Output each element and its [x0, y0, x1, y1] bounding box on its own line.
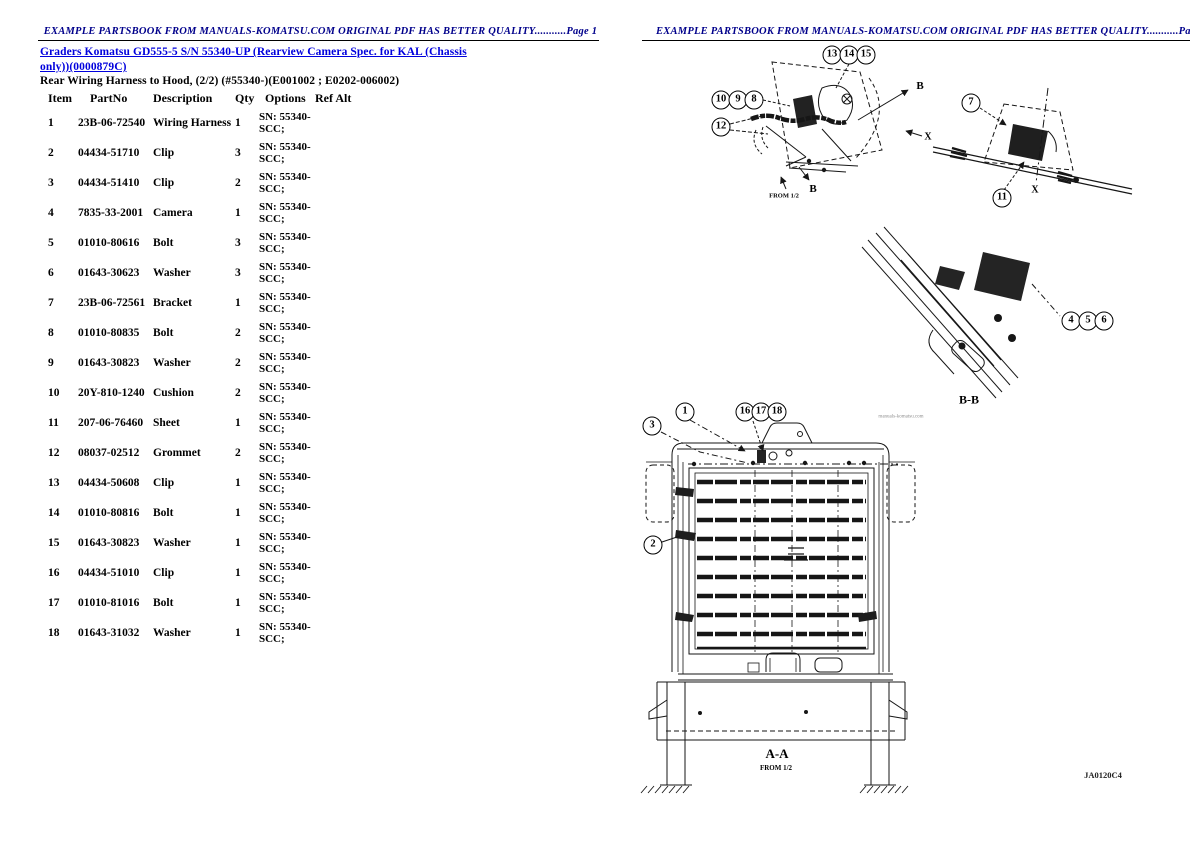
options-cell: SN: 55340-SCC; [259, 141, 380, 166]
qty-cell: 1 [235, 537, 259, 549]
options-line-2: SCC; [259, 333, 380, 346]
callout-2: 2 [644, 536, 663, 555]
options-line-1: SN: 55340- [259, 291, 380, 304]
callout-3: 3 [643, 417, 662, 436]
qty-cell: 2 [235, 447, 259, 459]
options-cell: SN: 55340-SCC; [259, 351, 380, 376]
options-line-1: SN: 55340- [259, 561, 380, 574]
description-cell: Bolt [153, 237, 235, 249]
options-line-1: SN: 55340- [259, 231, 380, 244]
options-line-2: SCC; [259, 393, 380, 406]
options-line-2: SCC; [259, 633, 380, 646]
table-row: 1604434-51010Clip1SN: 55340-SCC; [40, 558, 380, 588]
qty-cell: 3 [235, 237, 259, 249]
qty-cell: 1 [235, 297, 259, 309]
options-line-2: SCC; [259, 453, 380, 466]
qty-cell: 1 [235, 627, 259, 639]
options-cell: SN: 55340-SCC; [259, 441, 380, 466]
options-line-1: SN: 55340- [259, 621, 380, 634]
callout-15: 15 [857, 46, 876, 65]
options-line-2: SCC; [259, 303, 380, 316]
description-cell: Clip [153, 567, 235, 579]
item-cell: 11 [40, 417, 78, 429]
item-cell: 6 [40, 267, 78, 279]
column-header-item: Item [40, 91, 78, 107]
partno-cell: 01643-30823 [78, 357, 153, 369]
description-cell: Grommet [153, 447, 235, 459]
table-row: 1501643-30823Washer1SN: 55340-SCC; [40, 528, 380, 558]
options-line-2: SCC; [259, 273, 380, 286]
table-row: 501010-80616Bolt3SN: 55340-SCC; [40, 228, 380, 258]
item-cell: 1 [40, 117, 78, 129]
description-cell: Clip [153, 147, 235, 159]
section-title-a-a: A-A [765, 746, 788, 762]
description-cell: Bolt [153, 597, 235, 609]
watermark-text: manuals-komatsu.com [878, 415, 923, 420]
qty-cell: 2 [235, 387, 259, 399]
table-row: 1208037-02512Grommet2SN: 55340-SCC; [40, 438, 380, 468]
qty-cell: 1 [235, 117, 259, 129]
from-ref-label-fig1: FROM 1/2 [769, 193, 799, 200]
table-row: 723B-06-72561Bracket1SN: 55340-SCC; [40, 288, 380, 318]
options-line-1: SN: 55340- [259, 411, 380, 424]
options-line-2: SCC; [259, 123, 380, 136]
options-cell: SN: 55340-SCC; [259, 321, 380, 346]
qty-cell: 2 [235, 177, 259, 189]
options-line-2: SCC; [259, 153, 380, 166]
table-row: 1020Y-810-1240Cushion2SN: 55340-SCC; [40, 378, 380, 408]
description-cell: Cushion [153, 387, 235, 399]
model-link-line-1[interactable]: Graders Komatsu GD555-5 S/N 55340-UP (Re… [40, 46, 467, 58]
options-cell: SN: 55340-SCC; [259, 621, 380, 646]
item-cell: 5 [40, 237, 78, 249]
parts-table: ItemPartNoDescriptionQtyOptionsRef Alt 1… [40, 91, 380, 648]
options-cell: SN: 55340-SCC; [259, 111, 380, 136]
table-row: 601643-30623Washer3SN: 55340-SCC; [40, 258, 380, 288]
partno-cell: 08037-02512 [78, 447, 153, 459]
figure-code: JA0120C4 [1084, 770, 1122, 780]
partno-cell: 01643-30623 [78, 267, 153, 279]
options-cell: SN: 55340-SCC; [259, 531, 380, 556]
parts-table-header: ItemPartNoDescriptionQtyOptionsRef Alt [40, 91, 380, 107]
qty-cell: 1 [235, 567, 259, 579]
options-line-2: SCC; [259, 363, 380, 376]
options-line-2: SCC; [259, 183, 380, 196]
options-line-2: SCC; [259, 213, 380, 226]
section-arrow-label-b-bottom: B [809, 183, 816, 195]
partno-cell: 23B-06-72561 [78, 297, 153, 309]
qty-cell: 2 [235, 357, 259, 369]
options-cell: SN: 55340-SCC; [259, 231, 380, 256]
figure-subtitle: Rear Wiring Harness to Hood, (2/2) (#553… [40, 75, 399, 87]
figure-section-bb [862, 227, 1060, 398]
model-link[interactable]: Graders Komatsu GD555-5 S/N 55340-UP (Re… [40, 45, 515, 75]
description-cell: Camera [153, 207, 235, 219]
partno-cell: 207-06-76460 [78, 417, 153, 429]
item-cell: 15 [40, 537, 78, 549]
description-cell: Washer [153, 357, 235, 369]
item-cell: 16 [40, 567, 78, 579]
options-line-2: SCC; [259, 483, 380, 496]
options-cell: SN: 55340-SCC; [259, 201, 380, 226]
partno-cell: 23B-06-72540 [78, 117, 153, 129]
options-line-2: SCC; [259, 423, 380, 436]
partno-cell: 01643-30823 [78, 537, 153, 549]
options-cell: SN: 55340-SCC; [259, 291, 380, 316]
description-cell: Clip [153, 477, 235, 489]
options-line-1: SN: 55340- [259, 201, 380, 214]
item-cell: 8 [40, 327, 78, 339]
description-cell: Clip [153, 177, 235, 189]
qty-cell: 1 [235, 417, 259, 429]
item-cell: 18 [40, 627, 78, 639]
callout-11: 11 [993, 189, 1012, 208]
figure-rear-view-aa [641, 420, 915, 793]
options-cell: SN: 55340-SCC; [259, 171, 380, 196]
qty-cell: 1 [235, 207, 259, 219]
section-arrow-label-x-bottom: X [1031, 185, 1038, 196]
table-row: 204434-51710Clip3SN: 55340-SCC; [40, 138, 380, 168]
column-header-description: Description [153, 91, 235, 107]
options-line-1: SN: 55340- [259, 501, 380, 514]
table-row: 11207-06-76460Sheet1SN: 55340-SCC; [40, 408, 380, 438]
partno-cell: 01643-31032 [78, 627, 153, 639]
partno-cell: 20Y-810-1240 [78, 387, 153, 399]
page-1-header-rule [38, 40, 599, 41]
options-cell: SN: 55340-SCC; [259, 501, 380, 526]
partno-cell: 01010-80835 [78, 327, 153, 339]
options-line-1: SN: 55340- [259, 141, 380, 154]
options-line-1: SN: 55340- [259, 381, 380, 394]
section-arrow-label-x-left: X [924, 132, 931, 143]
partno-cell: 04434-50608 [78, 477, 153, 489]
description-cell: Bolt [153, 507, 235, 519]
description-cell: Bracket [153, 297, 235, 309]
qty-cell: 2 [235, 327, 259, 339]
options-cell: SN: 55340-SCC; [259, 561, 380, 586]
description-cell: Bolt [153, 327, 235, 339]
options-line-2: SCC; [259, 573, 380, 586]
options-line-1: SN: 55340- [259, 351, 380, 364]
partno-cell: 7835-33-2001 [78, 207, 153, 219]
column-header-options: Options [259, 91, 315, 107]
item-cell: 13 [40, 477, 78, 489]
qty-cell: 1 [235, 507, 259, 519]
description-cell: Washer [153, 627, 235, 639]
page-2-header: EXAMPLE PARTSBOOK FROM MANUALS-KOMATSU.C… [656, 26, 1186, 37]
table-row: 123B-06-72540Wiring Harness1SN: 55340-SC… [40, 108, 380, 138]
parts-table-body: 123B-06-72540Wiring Harness1SN: 55340-SC… [40, 108, 380, 648]
page-1-header: EXAMPLE PARTSBOOK FROM MANUALS-KOMATSU.C… [38, 26, 603, 37]
options-line-2: SCC; [259, 603, 380, 616]
column-header-ref-alt: Ref Alt [315, 91, 380, 107]
table-row: 304434-51410Clip2SN: 55340-SCC; [40, 168, 380, 198]
callout-1: 1 [676, 403, 695, 422]
item-cell: 12 [40, 447, 78, 459]
options-line-2: SCC; [259, 543, 380, 556]
callout-7: 7 [962, 94, 981, 113]
section-arrow-label-b-top: B [916, 80, 923, 92]
callout-8: 8 [745, 91, 764, 110]
options-line-2: SCC; [259, 243, 380, 256]
options-cell: SN: 55340-SCC; [259, 471, 380, 496]
item-cell: 4 [40, 207, 78, 219]
qty-cell: 3 [235, 147, 259, 159]
options-line-2: SCC; [259, 513, 380, 526]
options-line-1: SN: 55340- [259, 171, 380, 184]
table-row: 1801643-31032Washer1SN: 55340-SCC; [40, 618, 380, 648]
options-cell: SN: 55340-SCC; [259, 381, 380, 406]
qty-cell: 1 [235, 477, 259, 489]
partno-cell: 04434-51710 [78, 147, 153, 159]
options-line-1: SN: 55340- [259, 441, 380, 454]
partno-cell: 01010-80816 [78, 507, 153, 519]
partno-cell: 04434-51410 [78, 177, 153, 189]
partno-cell: 01010-80616 [78, 237, 153, 249]
options-line-1: SN: 55340- [259, 261, 380, 274]
page-2-header-rule [642, 40, 1190, 41]
options-line-1: SN: 55340- [259, 111, 380, 124]
table-row: 1304434-50608Clip1SN: 55340-SCC; [40, 468, 380, 498]
options-line-1: SN: 55340- [259, 471, 380, 484]
document-sheet: EXAMPLE PARTSBOOK FROM MANUALS-KOMATSU.C… [0, 0, 1190, 842]
description-cell: Wiring Harness [153, 117, 235, 129]
item-cell: 3 [40, 177, 78, 189]
callout-12: 12 [712, 118, 731, 137]
section-title-b-b: B-B [959, 393, 979, 408]
model-link-line-2[interactable]: only))(0000879C) [40, 61, 127, 73]
options-cell: SN: 55340-SCC; [259, 411, 380, 436]
item-cell: 10 [40, 387, 78, 399]
table-row: 1401010-80816Bolt1SN: 55340-SCC; [40, 498, 380, 528]
table-row: 801010-80835Bolt2SN: 55340-SCC; [40, 318, 380, 348]
column-header-partno: PartNo [78, 91, 153, 107]
item-cell: 7 [40, 297, 78, 309]
description-cell: Sheet [153, 417, 235, 429]
item-cell: 14 [40, 507, 78, 519]
description-cell: Washer [153, 267, 235, 279]
options-line-1: SN: 55340- [259, 531, 380, 544]
options-cell: SN: 55340-SCC; [259, 591, 380, 616]
item-cell: 17 [40, 597, 78, 609]
table-row: 901643-30823Washer2SN: 55340-SCC; [40, 348, 380, 378]
options-line-1: SN: 55340- [259, 591, 380, 604]
options-line-1: SN: 55340- [259, 321, 380, 334]
callout-18: 18 [768, 403, 787, 422]
table-row: 47835-33-2001Camera1SN: 55340-SCC; [40, 198, 380, 228]
qty-cell: 1 [235, 597, 259, 609]
partno-cell: 04434-51010 [78, 567, 153, 579]
item-cell: 2 [40, 147, 78, 159]
item-cell: 9 [40, 357, 78, 369]
partno-cell: 01010-81016 [78, 597, 153, 609]
callout-6: 6 [1095, 312, 1114, 331]
qty-cell: 3 [235, 267, 259, 279]
from-ref-label-fig4: FROM 1/2 [760, 764, 792, 772]
options-cell: SN: 55340-SCC; [259, 261, 380, 286]
column-header-qty: Qty [235, 91, 259, 107]
table-row: 1701010-81016Bolt1SN: 55340-SCC; [40, 588, 380, 618]
description-cell: Washer [153, 537, 235, 549]
figure-hood-isometric [730, 62, 922, 189]
